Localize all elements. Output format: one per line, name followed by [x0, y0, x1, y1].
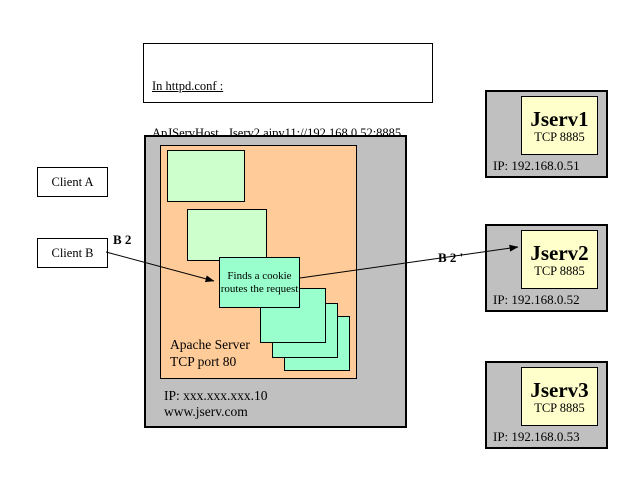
jserv1-box: Jserv1 TCP 8885 — [521, 96, 598, 155]
jserv3-port: TCP 8885 — [534, 401, 585, 415]
jserv2-port: TCP 8885 — [534, 264, 585, 278]
client-a-label: Client A — [51, 175, 93, 190]
httpd-conf-note: In httpd.conf : ApJServHost Jserv2 ajpv1… — [143, 43, 433, 103]
routed-cookie-label: B 2 ' — [438, 250, 463, 266]
jserv1-host-box: Jserv1 TCP 8885 IP: 192.168.0.51 — [485, 90, 608, 178]
apache-hostname-text: www.jserv.com — [164, 404, 268, 420]
module-box-2 — [187, 209, 267, 261]
jserv2-box: Jserv2 TCP 8885 — [521, 230, 598, 289]
jserv2-ip: IP: 192.168.0.52 — [493, 292, 580, 308]
apache-ip-text: IP: xxx.xxx.xxx.10 — [164, 388, 268, 404]
jserv3-name: Jserv3 — [530, 379, 588, 401]
jserv-architecture-diagram: In httpd.conf : ApJServHost Jserv2 ajpv1… — [0, 0, 640, 480]
apache-name: Apache Server — [170, 336, 250, 353]
jserv3-host-box: Jserv3 TCP 8885 IP: 192.168.0.53 — [485, 361, 608, 449]
client-b-label: Client B — [51, 246, 93, 261]
jserv1-ip: IP: 192.168.0.51 — [493, 158, 580, 174]
module-box-1 — [167, 150, 245, 202]
apache-server-label: Apache Server TCP port 80 — [170, 336, 250, 370]
cookie-router-box: Finds a cookie routes the request — [219, 257, 300, 308]
httpd-conf-title: In httpd.conf : — [152, 79, 426, 95]
jserv1-name: Jserv1 — [530, 108, 588, 130]
apache-port: TCP port 80 — [170, 353, 250, 370]
client-b-box: Client B — [37, 238, 108, 268]
jserv2-host-box: Jserv2 TCP 8885 IP: 192.168.0.52 — [485, 224, 608, 312]
jserv1-port: TCP 8885 — [534, 130, 585, 144]
jserv3-ip: IP: 192.168.0.53 — [493, 429, 580, 445]
jserv3-box: Jserv3 TCP 8885 — [521, 367, 598, 426]
cookie-note-line1: Finds a cookie — [227, 270, 291, 283]
apache-address-label: IP: xxx.xxx.xxx.10 www.jserv.com — [164, 388, 268, 420]
client-a-box: Client A — [37, 167, 108, 197]
cookie-note-line2: routes the request — [221, 283, 299, 296]
request-cookie-label: B 2 — [113, 232, 131, 248]
jserv2-name: Jserv2 — [530, 242, 588, 264]
